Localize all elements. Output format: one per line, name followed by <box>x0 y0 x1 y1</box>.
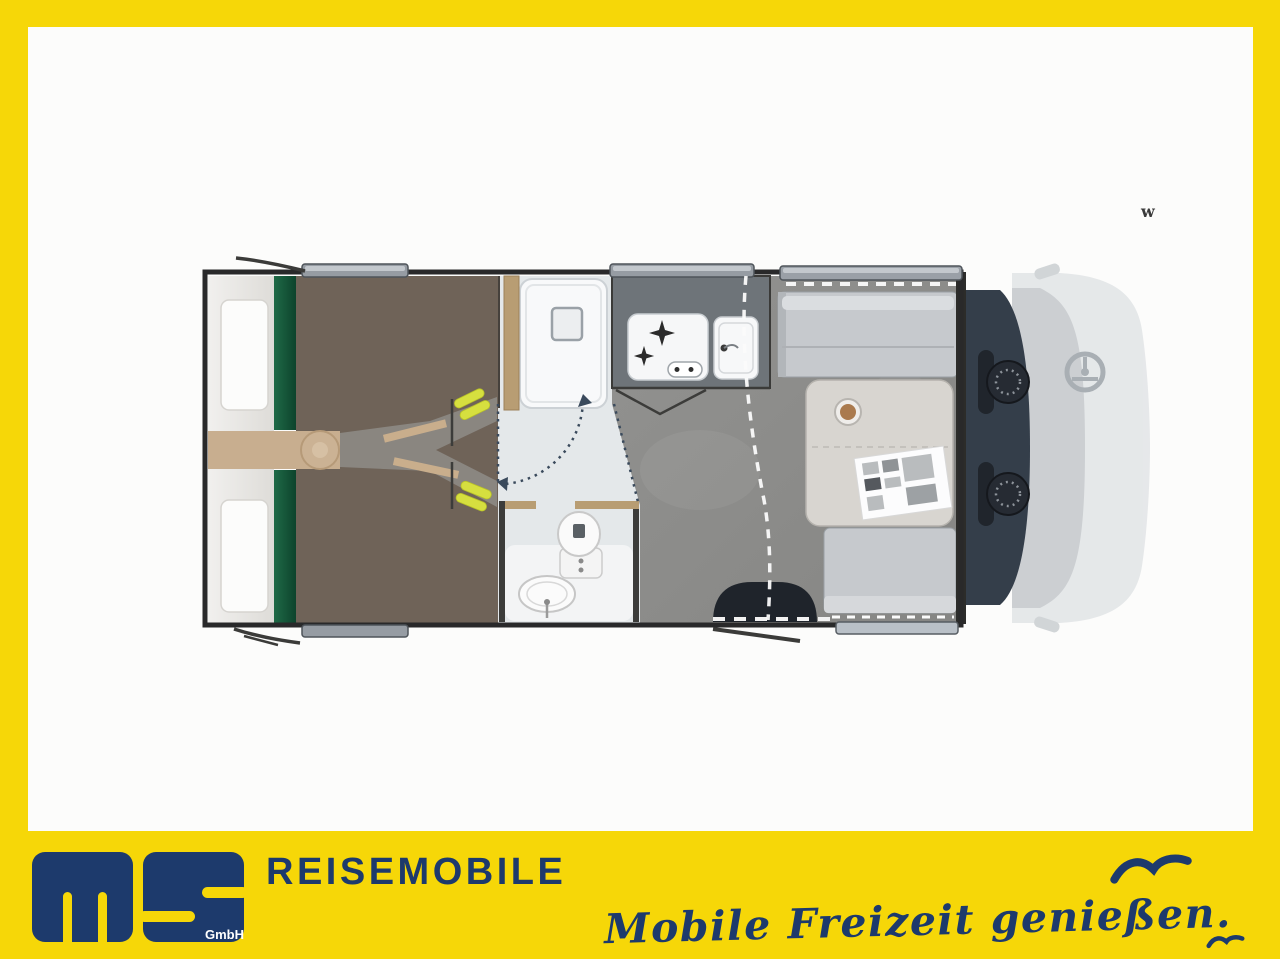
brand-wordmark: REISEMOBILE <box>266 851 566 894</box>
seagull-icon <box>1208 937 1242 946</box>
seagulls-graphic <box>1100 850 1270 959</box>
ms-logo: GmbH <box>32 852 247 947</box>
logo-gmbh-label: GmbH <box>205 927 244 942</box>
watermark-text: w <box>1141 202 1155 221</box>
logo-letter-m <box>32 852 133 942</box>
seagull-icon <box>1113 857 1189 880</box>
photo-area <box>28 27 1253 831</box>
